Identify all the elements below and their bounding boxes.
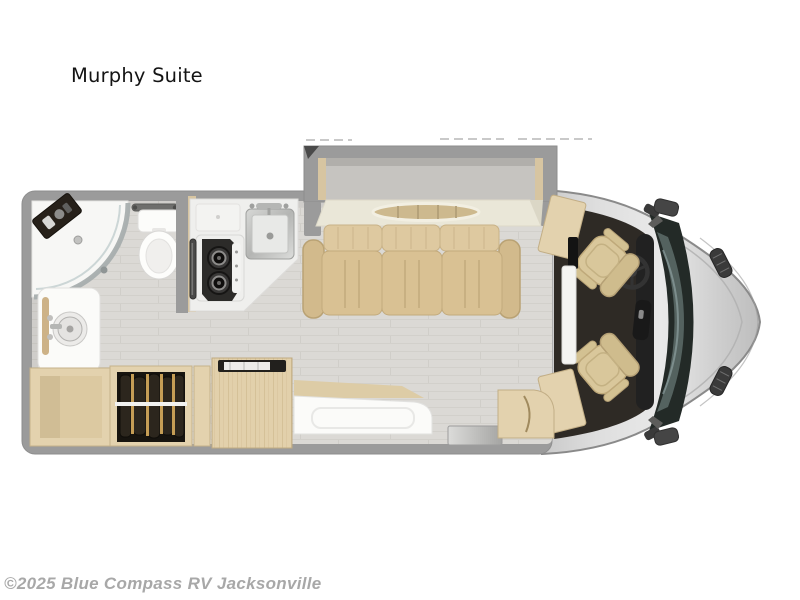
bed-pull-handle (373, 204, 479, 221)
bench-seat (294, 396, 432, 434)
screenshot-root: Murphy Suite (0, 0, 800, 600)
wardrobe (110, 366, 192, 446)
kitchen-sink (246, 203, 294, 259)
vanity-faucet (50, 324, 62, 329)
cabinet-pillar (194, 366, 210, 446)
cooktop (196, 235, 244, 301)
overhead-cabinet-dashes (306, 139, 592, 140)
closet-rod (115, 402, 187, 406)
tv-slot (568, 237, 578, 269)
shower-drain (74, 236, 82, 244)
open-cabinet (30, 368, 110, 446)
sofa-armrest-left (303, 240, 324, 318)
corner-cabinet (498, 390, 554, 438)
cooktop-burner-rear (208, 272, 230, 294)
copyright-watermark: ©2025 Blue Compass RV Jacksonville (4, 574, 322, 594)
murphy-bed-platform (316, 200, 543, 226)
partition-pillar (562, 266, 576, 364)
floorplan-image (0, 0, 800, 600)
refrigerator (212, 358, 292, 448)
vanity-sink (38, 288, 100, 372)
kitchen-divider-wall (176, 193, 188, 313)
sofa-seat-cushions (322, 251, 502, 315)
sofa (303, 225, 520, 318)
entry-step (448, 426, 502, 445)
shower-door-handle (101, 267, 108, 274)
toilet (138, 210, 180, 279)
floorplan (0, 0, 800, 600)
sofa-back-cushions (324, 225, 499, 251)
fridge-vent (218, 360, 286, 372)
cooktop-burner-front (208, 247, 230, 269)
grab-bar (42, 297, 49, 355)
